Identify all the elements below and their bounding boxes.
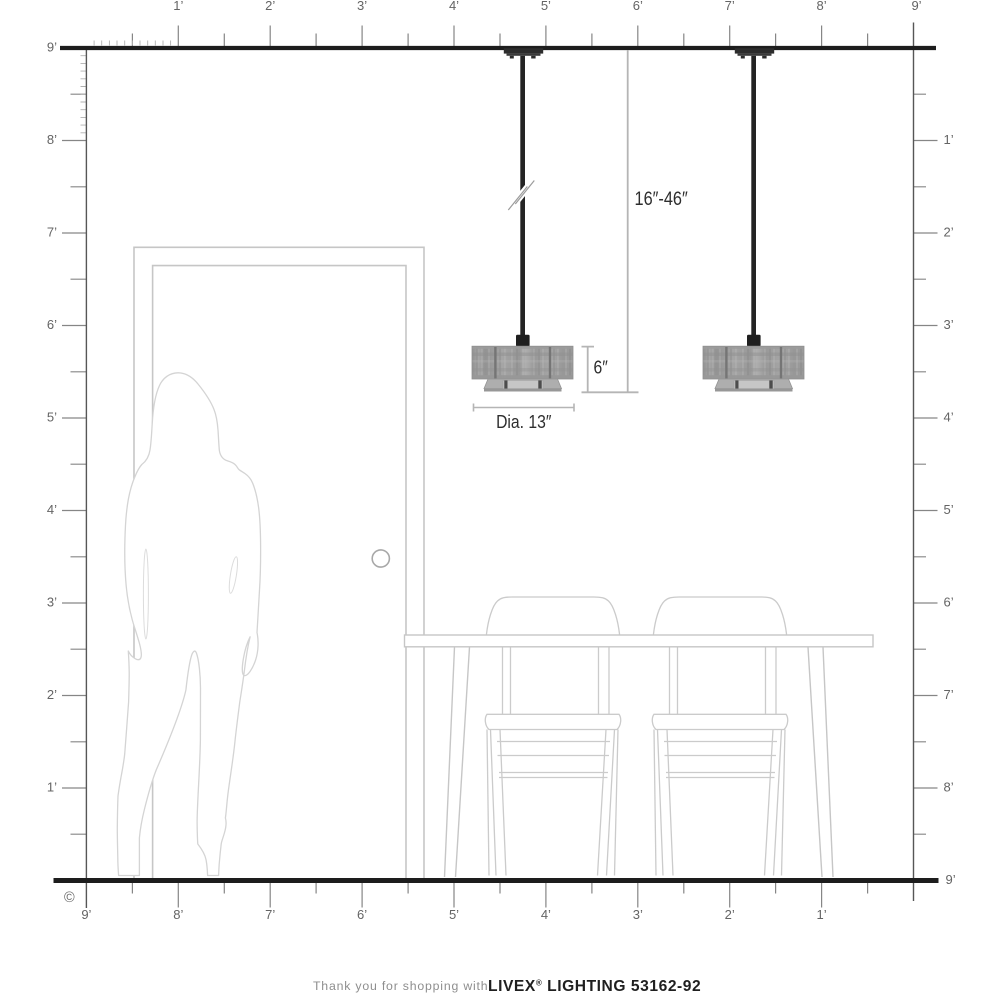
svg-text:3’: 3’ [357, 0, 367, 13]
svg-text:9’: 9’ [911, 0, 921, 13]
svg-text:2’: 2’ [47, 687, 57, 702]
svg-text:5’: 5’ [541, 0, 551, 13]
svg-text:5’: 5’ [47, 410, 57, 425]
svg-text:1’: 1’ [817, 907, 827, 922]
svg-text:LIVEX® LIGHTING 53162-92: LIVEX® LIGHTING 53162-92 [488, 978, 701, 995]
svg-text:4’: 4’ [541, 907, 551, 922]
svg-text:4’: 4’ [47, 502, 57, 517]
svg-text:8’: 8’ [173, 907, 183, 922]
svg-text:9’: 9’ [81, 907, 91, 922]
svg-text:6″: 6″ [593, 356, 607, 378]
svg-text:9’: 9’ [946, 872, 956, 887]
svg-text:3’: 3’ [633, 907, 643, 922]
svg-text:16″-46″: 16″-46″ [635, 188, 688, 210]
svg-text:©: © [64, 890, 75, 906]
svg-text:3’: 3’ [47, 595, 57, 610]
svg-text:7’: 7’ [725, 0, 735, 13]
svg-text:2’: 2’ [265, 0, 275, 13]
svg-text:1’: 1’ [47, 780, 57, 795]
svg-text:3’: 3’ [944, 317, 954, 332]
svg-text:8’: 8’ [47, 132, 57, 147]
svg-text:6’: 6’ [357, 907, 367, 922]
svg-text:2’: 2’ [725, 907, 735, 922]
svg-text:6’: 6’ [944, 595, 954, 610]
svg-text:5’: 5’ [449, 907, 459, 922]
svg-text:Thank you for shopping with: Thank you for shopping with [313, 979, 488, 993]
svg-text:7’: 7’ [944, 687, 954, 702]
svg-text:4’: 4’ [944, 410, 954, 425]
svg-text:9’: 9’ [47, 40, 57, 55]
svg-text:2’: 2’ [944, 225, 954, 240]
svg-text:1’: 1’ [173, 0, 183, 13]
svg-text:Dia. 13″: Dia. 13″ [496, 411, 551, 433]
svg-text:6’: 6’ [633, 0, 643, 13]
svg-text:7’: 7’ [265, 907, 275, 922]
svg-text:1’: 1’ [944, 132, 954, 147]
svg-text:5’: 5’ [944, 502, 954, 517]
svg-text:4’: 4’ [449, 0, 459, 13]
svg-text:8’: 8’ [817, 0, 827, 13]
svg-text:8’: 8’ [944, 780, 954, 795]
svg-text:6’: 6’ [47, 317, 57, 332]
svg-text:7’: 7’ [47, 225, 57, 240]
